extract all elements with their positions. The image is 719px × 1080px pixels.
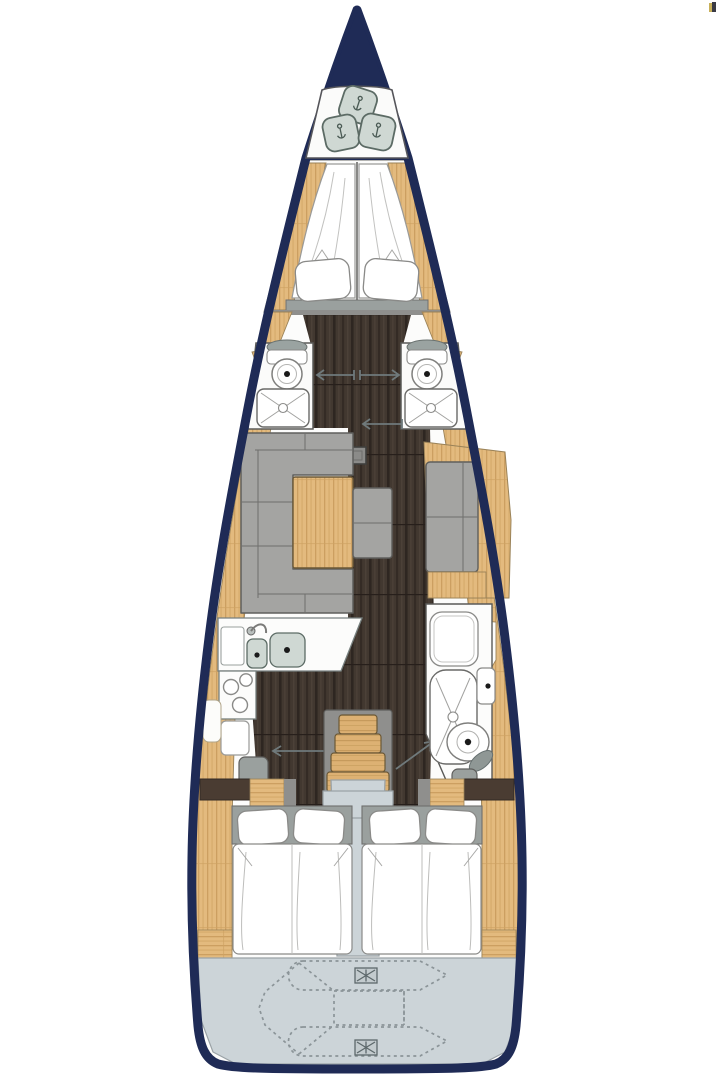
stern-wood-corner-port xyxy=(198,930,232,958)
stbd-cabin-wood-strip xyxy=(430,779,464,808)
burner-3 xyxy=(233,698,248,713)
toilet-drain-port xyxy=(284,371,290,377)
corner-artifact xyxy=(709,2,716,12)
companionway-step-3 xyxy=(331,753,385,772)
stbd-cabin-locker-dark xyxy=(464,779,514,800)
port-cabin-locker-dark xyxy=(200,779,250,800)
pillow-port-2 xyxy=(293,808,345,845)
settee-step xyxy=(428,572,486,598)
aft-head-locker xyxy=(430,612,478,666)
floor-plan-canvas xyxy=(0,0,719,1080)
port-cabin-wood-strip xyxy=(250,779,284,808)
pillow-stbd-2 xyxy=(425,808,477,845)
aft-sink-drain xyxy=(485,683,490,688)
stbd-aft-berth xyxy=(362,806,482,954)
deck-hatch-aft-icon xyxy=(355,1040,377,1055)
port-aft-berth xyxy=(232,806,352,954)
aft-shower-drain xyxy=(448,712,458,722)
sink-drain-small xyxy=(254,652,259,657)
sink-drain-large xyxy=(284,647,290,653)
aft-cabins xyxy=(198,779,516,958)
galley-cutting-board xyxy=(221,627,244,665)
burner-1 xyxy=(224,680,239,695)
aft-toilet-drain xyxy=(465,739,471,745)
saloon-table xyxy=(293,477,353,568)
shower-drain-stbd xyxy=(427,404,436,413)
yacht-floor-plan xyxy=(0,0,719,1080)
companionway-step-1 xyxy=(339,715,377,734)
shower-drain-port xyxy=(279,404,288,413)
transom xyxy=(198,958,520,1064)
pillow-stbd-1 xyxy=(369,808,421,845)
galley-cabinet xyxy=(221,721,249,755)
port-cabin-frame xyxy=(284,779,296,808)
pillow-forward-port xyxy=(294,258,351,303)
burner-2 xyxy=(240,674,252,686)
pillow-port-1 xyxy=(237,808,289,845)
stbd-cabin-frame xyxy=(418,779,430,808)
pillow-forward-stbd xyxy=(362,258,419,303)
toilet-drain-stbd xyxy=(424,371,430,377)
stern-wood-corner-stbd xyxy=(482,930,516,958)
deck-hatch-fore-icon xyxy=(355,968,377,983)
companionway-step-2 xyxy=(335,734,381,753)
